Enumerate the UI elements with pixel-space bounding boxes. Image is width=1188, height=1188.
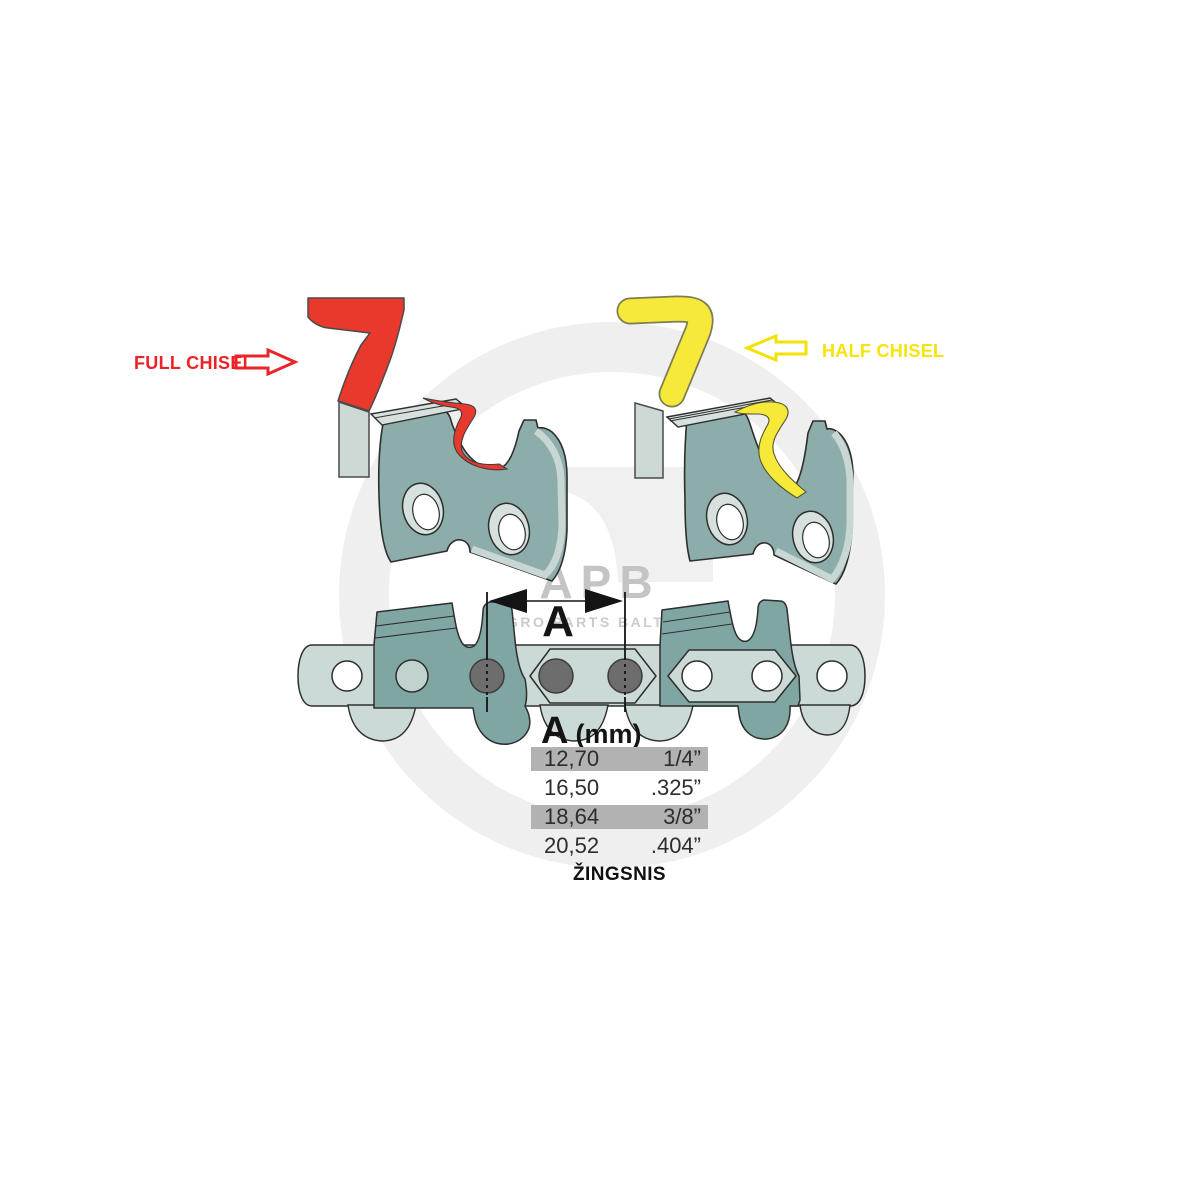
table-row: 18,64 3/8”: [531, 805, 708, 829]
pitch-mm-value: 20,52: [531, 834, 630, 858]
pitch-inch-value: 1/4”: [630, 747, 708, 771]
strap-hole: [682, 661, 712, 691]
chain-diagram-artwork: APB AGRO PARTS BALTIJA: [0, 0, 1188, 1188]
diagram-canvas: APB AGRO PARTS BALTIJA: [0, 0, 1188, 1188]
half-chisel-profile-shank: [635, 403, 663, 478]
strap-hole: [817, 661, 847, 691]
strap-hole: [752, 661, 782, 691]
pitch-inch-value: .325”: [630, 776, 708, 800]
pitch-dimension-letter: A: [523, 597, 593, 647]
full-chisel-label: FULL CHISEL: [134, 353, 254, 374]
pitch-rivet: [539, 659, 573, 693]
pitch-conversion-table: 12,70 1/4” 16,50 .325” 18,64 3/8” 20,52 …: [531, 747, 708, 863]
strap-hole: [332, 661, 362, 691]
rivet-head: [396, 660, 428, 692]
table-row: 20,52 .404”: [531, 834, 708, 858]
full-chisel-cutter-link: [371, 398, 567, 581]
pitch-caption: ŽINGSNIS: [531, 864, 708, 886]
pitch-mm-value: 18,64: [531, 805, 630, 829]
pitch-inch-value: 3/8”: [630, 805, 708, 829]
half-chisel-arrow-icon: [747, 336, 806, 360]
full-chisel-profile-edge: [308, 298, 404, 411]
table-row: 12,70 1/4”: [531, 747, 708, 771]
full-chisel-profile-shank: [339, 402, 369, 477]
pitch-mm-value: 16,50: [531, 776, 630, 800]
table-row: 16,50 .325”: [531, 776, 708, 800]
pitch-inch-value: .404”: [630, 834, 708, 858]
half-chisel-label: HALF CHISEL: [822, 341, 944, 362]
pitch-mm-value: 12,70: [531, 747, 630, 771]
